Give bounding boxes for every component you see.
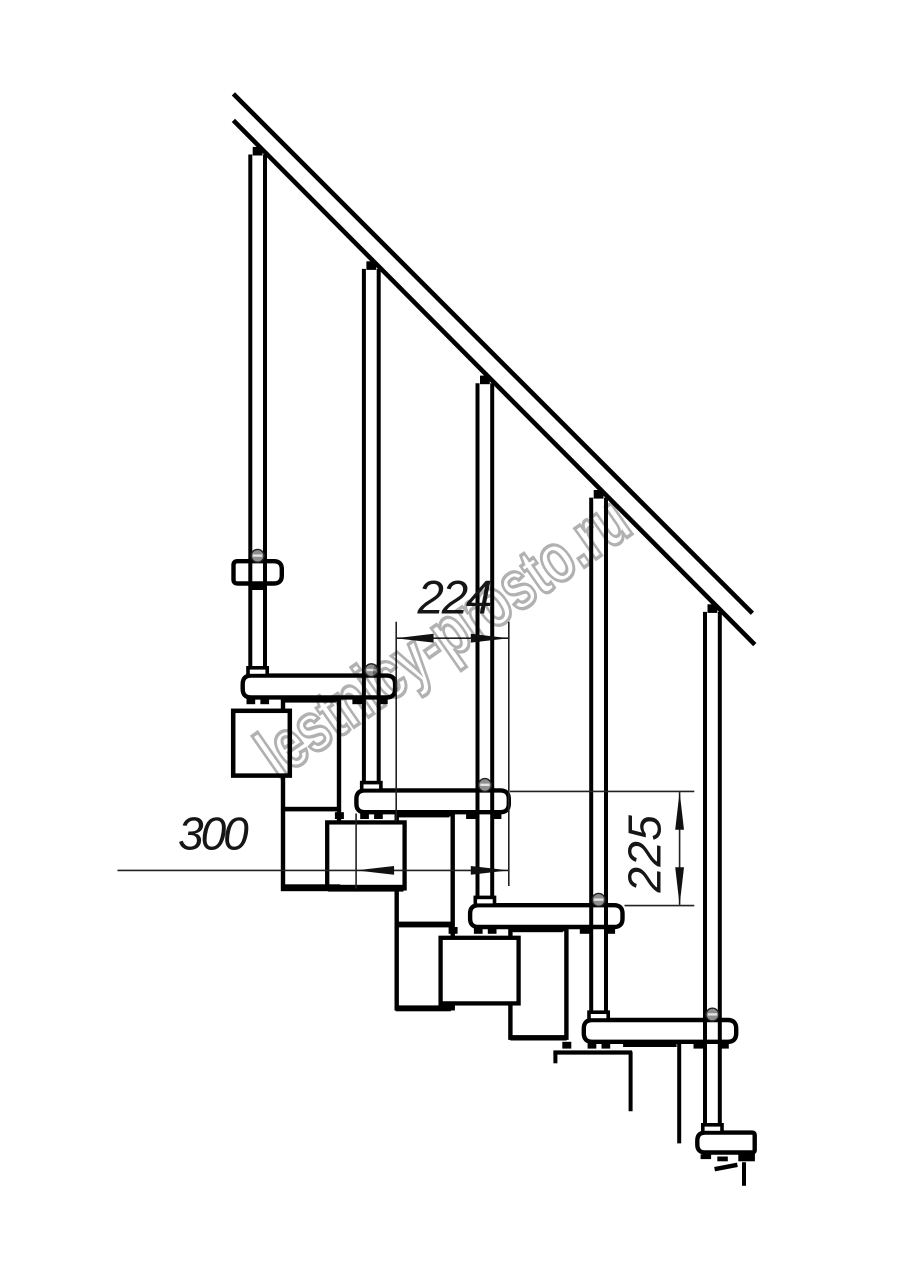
svg-text:225: 225	[619, 815, 671, 894]
svg-text:300: 300	[178, 808, 249, 860]
